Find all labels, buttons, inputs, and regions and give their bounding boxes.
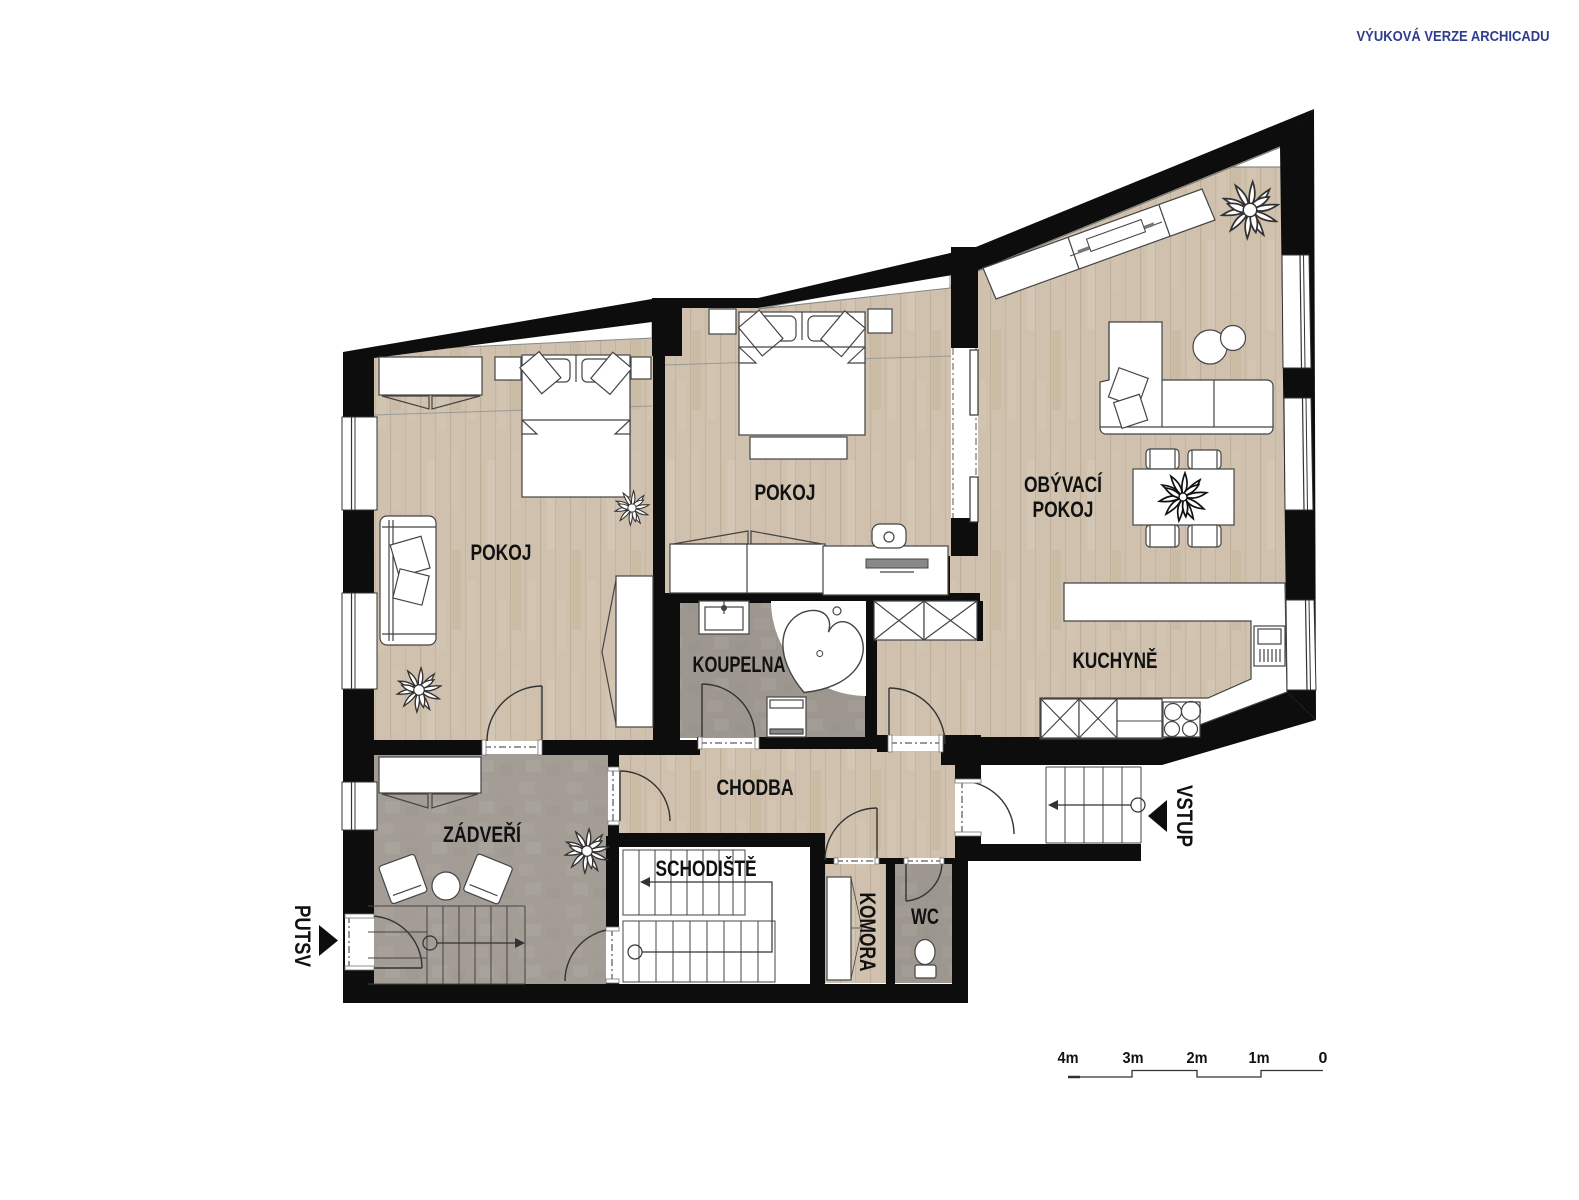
svg-text:ZÁDVEŘÍ: ZÁDVEŘÍ — [443, 822, 522, 847]
svg-text:WC: WC — [911, 904, 939, 929]
svg-text:POKOJ: POKOJ — [1033, 497, 1094, 522]
svg-text:0: 0 — [1319, 1050, 1328, 1067]
svg-text:4m: 4m — [1058, 1050, 1079, 1067]
svg-text:2m: 2m — [1187, 1050, 1208, 1067]
svg-text:KUCHYNĚ: KUCHYNĚ — [1073, 648, 1158, 673]
svg-text:POKOJ: POKOJ — [471, 540, 532, 565]
svg-text:POKOJ: POKOJ — [755, 480, 816, 505]
svg-text:3m: 3m — [1123, 1050, 1144, 1067]
svg-text:KOMORA: KOMORA — [855, 893, 880, 972]
svg-text:KOUPELNA: KOUPELNA — [693, 652, 786, 677]
svg-text:OBÝVACÍ: OBÝVACÍ — [1024, 472, 1103, 497]
svg-text:VÝUKOVÁ VERZE ARCHICADU: VÝUKOVÁ VERZE ARCHICADU — [1357, 27, 1550, 45]
svg-text:VSTUP: VSTUP — [1172, 785, 1197, 847]
svg-text:SCHODIŠTĚ: SCHODIŠTĚ — [656, 856, 757, 881]
svg-text:1m: 1m — [1249, 1050, 1270, 1067]
svg-text:CHODBA: CHODBA — [717, 775, 794, 800]
svg-text:PUTSV: PUTSV — [290, 905, 315, 967]
